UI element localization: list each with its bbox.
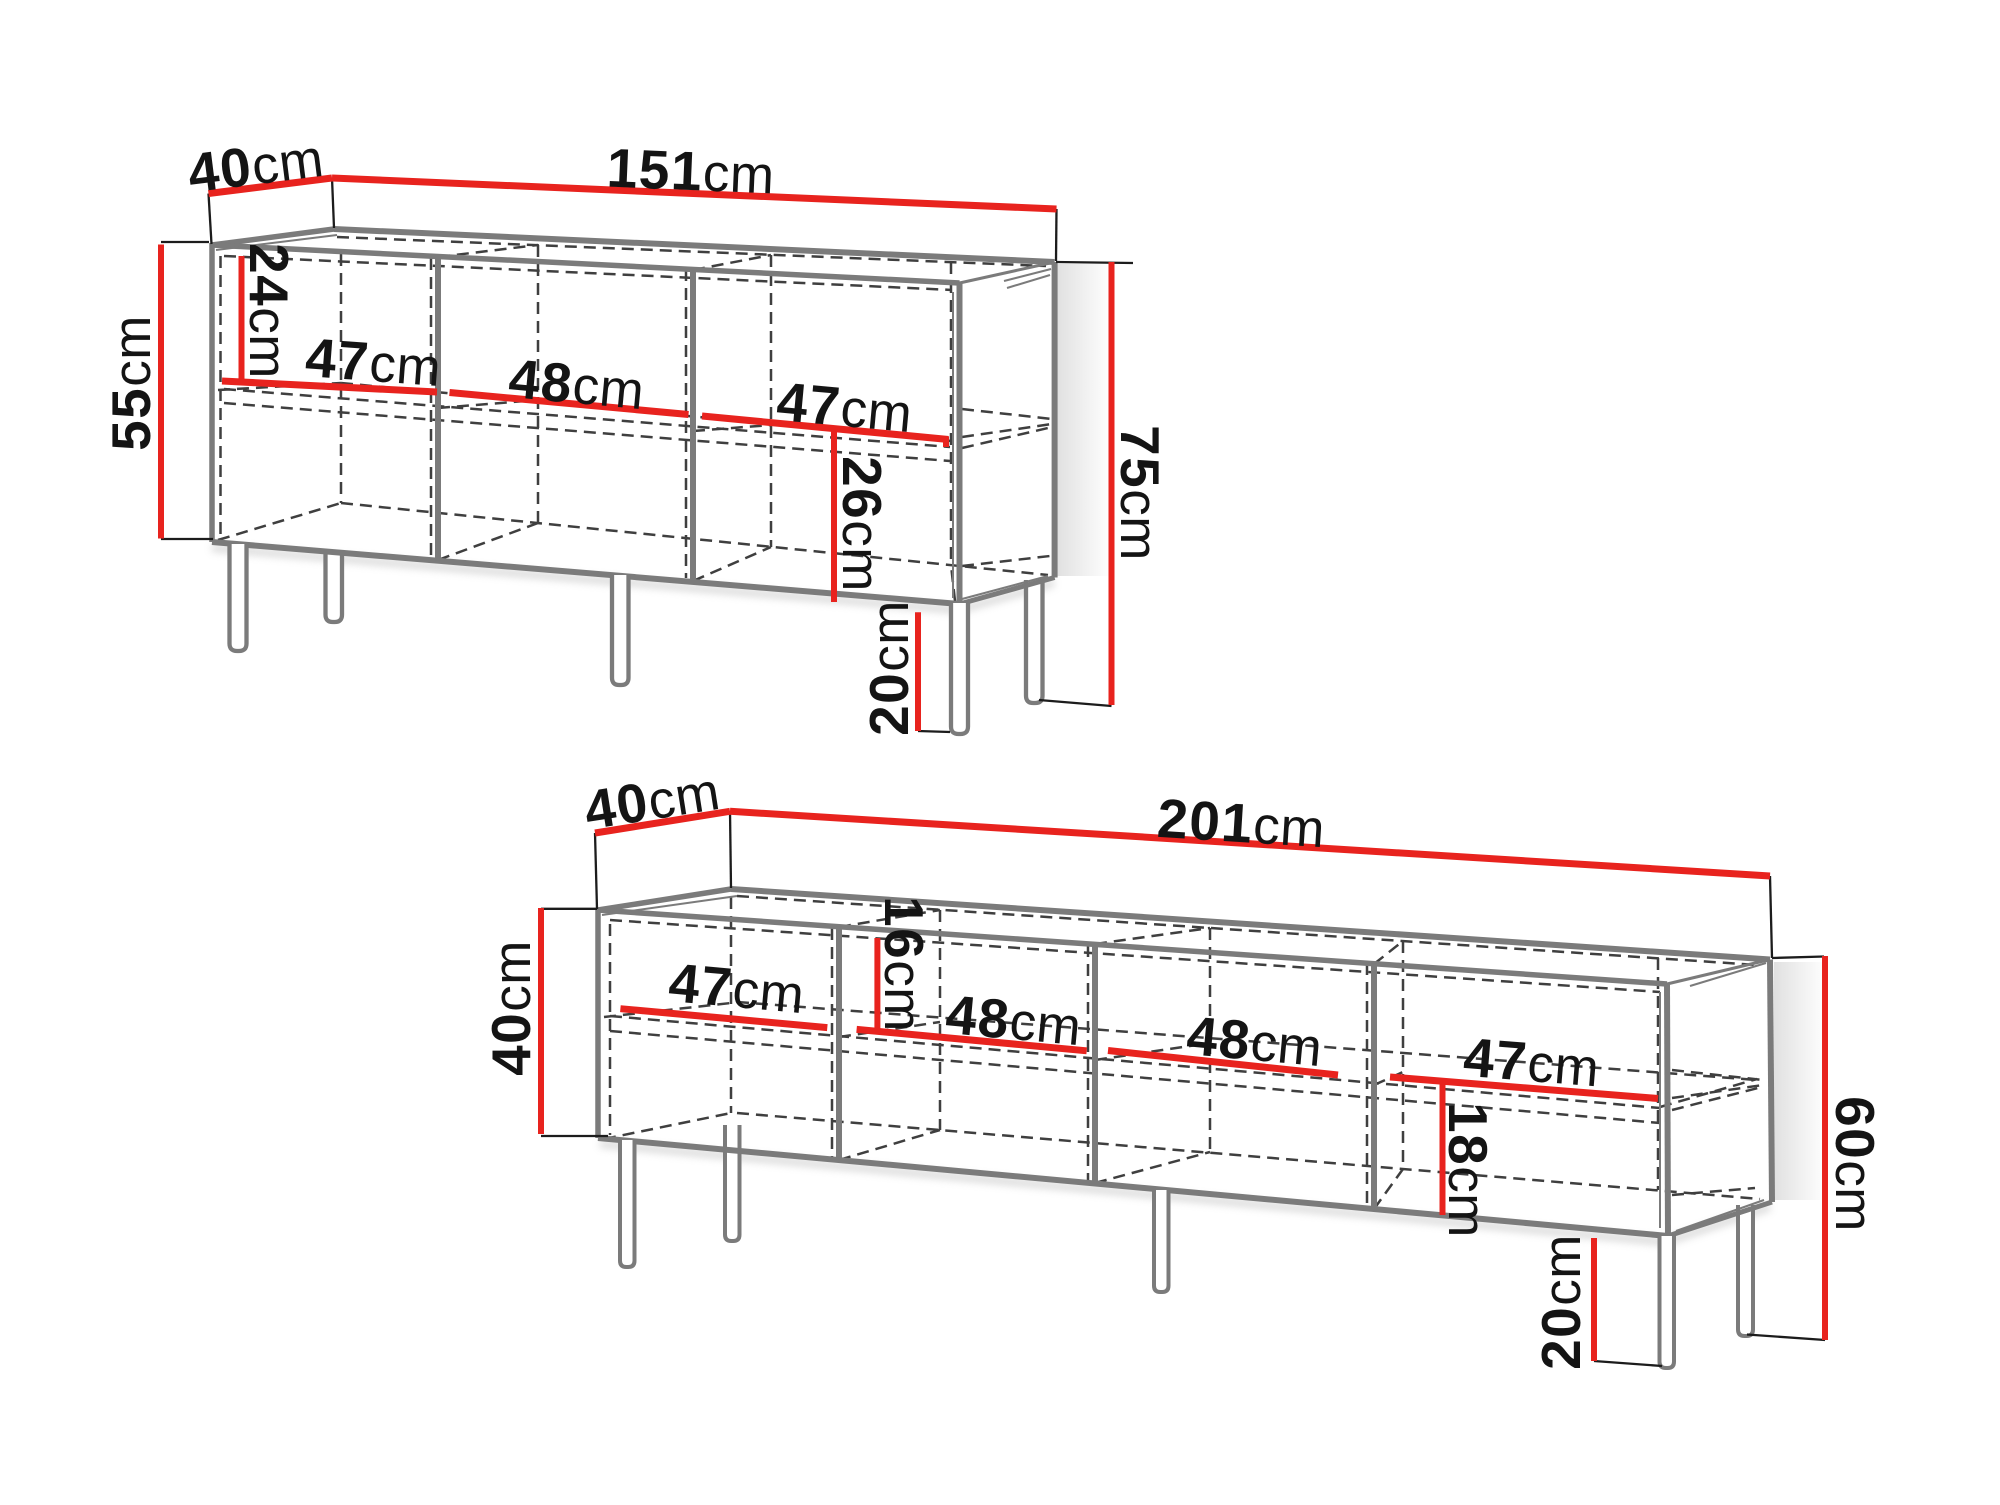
svg-text:55cm: 55cm [100, 315, 162, 451]
svg-text:26cm: 26cm [831, 456, 893, 592]
svg-text:20cm: 20cm [1530, 1234, 1592, 1370]
svg-text:75cm: 75cm [1109, 425, 1171, 561]
svg-text:151cm: 151cm [606, 137, 776, 206]
svg-text:24cm: 24cm [238, 243, 300, 379]
svg-text:60cm: 60cm [1824, 1096, 1886, 1232]
svg-text:20cm: 20cm [858, 600, 920, 736]
svg-text:18cm: 18cm [1437, 1102, 1499, 1238]
svg-text:40cm: 40cm [480, 940, 542, 1076]
svg-text:16cm: 16cm [873, 896, 935, 1032]
svg-text:47cm: 47cm [303, 326, 443, 398]
